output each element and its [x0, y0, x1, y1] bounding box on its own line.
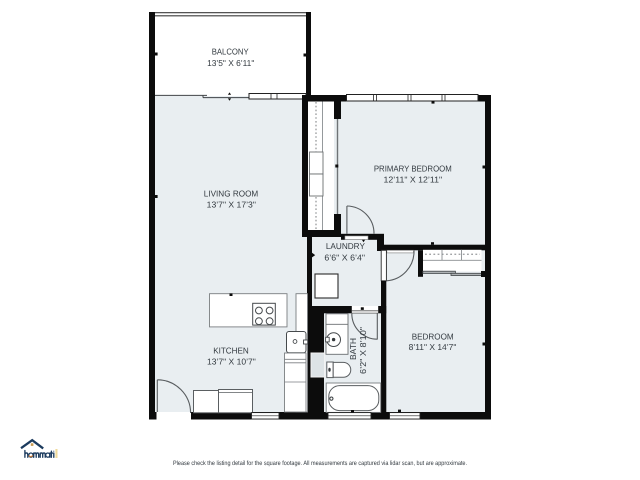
svg-text:Please check the listing detai: Please check the listing detail for the …: [173, 460, 467, 467]
